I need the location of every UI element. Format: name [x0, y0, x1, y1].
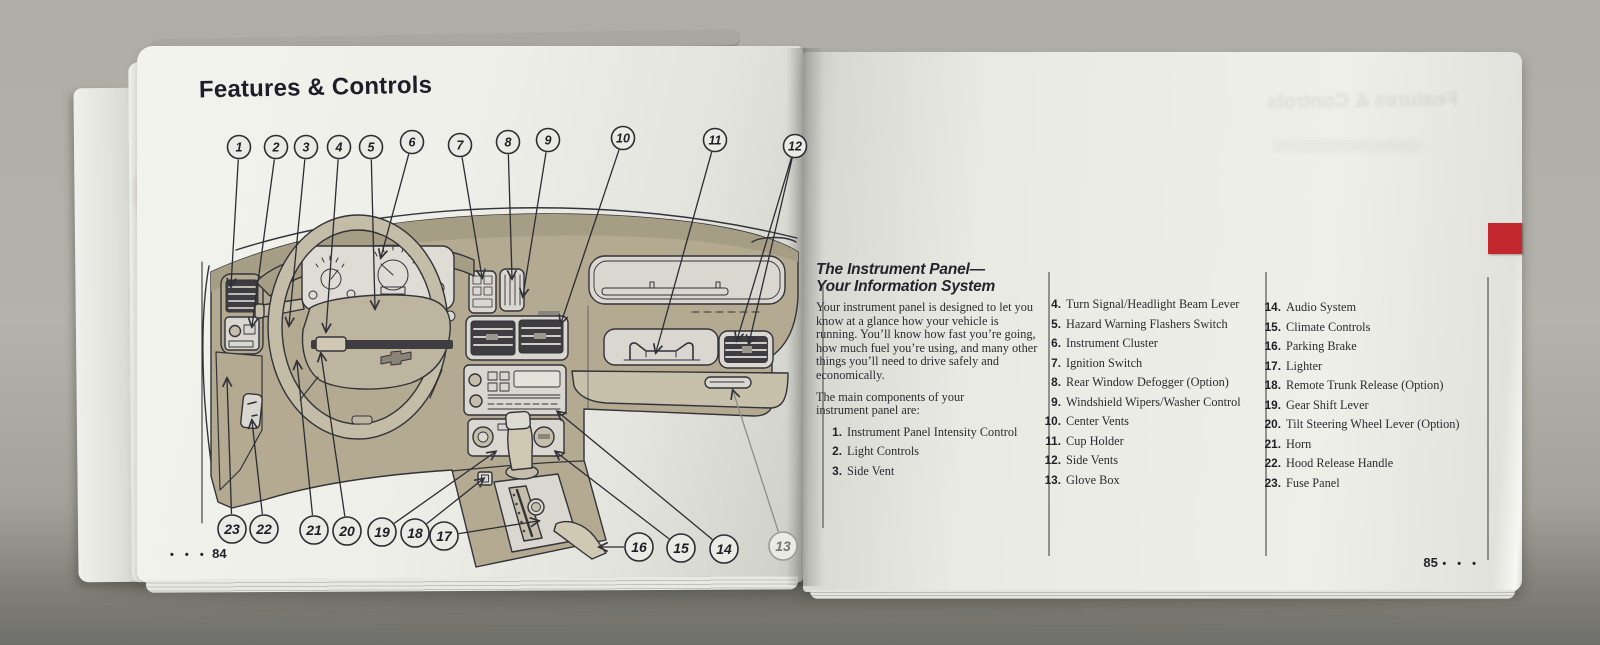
- list-item-label: Lighter: [1286, 359, 1322, 374]
- list-item-label: Remote Trunk Release (Option): [1286, 378, 1443, 393]
- list-item: 20. Tilt Steering Wheel Lever (Option): [1253, 417, 1515, 432]
- list-item: 7. Ignition Switch: [1035, 356, 1257, 371]
- page-dots: • • •: [1442, 558, 1480, 570]
- list-item-number: 14.: [1253, 300, 1281, 314]
- list-item: 19. Gear Shift Lever: [1253, 398, 1515, 413]
- right-page: Features & Controls The Instrument Panel…: [803, 52, 1522, 592]
- list-item: 8. Rear Window Defogger (Option): [1035, 375, 1257, 390]
- list-item-label: Side Vent: [847, 464, 894, 479]
- section-heading: Your Information System: [816, 279, 1040, 296]
- list-item: 13. Glove Box: [1035, 473, 1257, 488]
- list-item-number: 6.: [1035, 336, 1061, 350]
- list-item-label: Cup Holder: [1066, 434, 1124, 449]
- list-item-label: Light Controls: [847, 444, 919, 459]
- list-item: 21. Horn: [1253, 437, 1515, 452]
- list-item-label: Fuse Panel: [1286, 476, 1340, 491]
- left-page: Features & Controls • • • 84: [137, 46, 803, 582]
- list-item: 1. Instrument Panel Intensity Control: [816, 425, 1040, 440]
- list-item: 6. Instrument Cluster: [1035, 336, 1257, 351]
- list-item-label: Hazard Warning Flashers Switch: [1066, 317, 1228, 332]
- list-item-label: Turn Signal/Headlight Beam Lever: [1066, 297, 1239, 312]
- list-item-number: 7.: [1035, 356, 1061, 370]
- list-item: 3. Side Vent: [816, 464, 1040, 479]
- list-item-label: Hood Release Handle: [1286, 456, 1393, 471]
- list-item-number: 18.: [1253, 378, 1281, 392]
- list-item-number: 4.: [1035, 297, 1061, 311]
- list-item: 22. Hood Release Handle: [1253, 456, 1515, 471]
- right-page-bottom-edges: [810, 590, 1515, 599]
- intro-paragraph: Your instrument panel is designed to let…: [816, 301, 1040, 383]
- intro-column: The Instrument Panel— Your Information S…: [816, 262, 1040, 483]
- list-item: 17. Lighter: [1253, 359, 1515, 374]
- components-list-col2: 4. Turn Signal/Headlight Beam Lever 5. H…: [1035, 297, 1257, 492]
- list-item-number: 22.: [1253, 456, 1281, 470]
- list-item-label: Tilt Steering Wheel Lever (Option): [1286, 417, 1460, 432]
- page-title: Features & Controls: [199, 72, 433, 105]
- list-item-number: 10.: [1035, 414, 1061, 428]
- list-item-number: 19.: [1253, 398, 1281, 412]
- list-item-number: 8.: [1035, 375, 1061, 389]
- list-item: 18. Remote Trunk Release (Option): [1253, 378, 1515, 393]
- components-list-col1: 1. Instrument Panel Intensity Control 2.…: [816, 425, 1040, 479]
- list-item-label: Climate Controls: [1286, 320, 1370, 335]
- book-gutter-shadow: [786, 48, 824, 586]
- components-list-col3: 14. Audio System 15. Climate Controls 16…: [1253, 300, 1515, 495]
- list-item-label: Gear Shift Lever: [1286, 398, 1369, 413]
- bleedthrough-smudge: [1273, 140, 1423, 152]
- page-dots: • • •: [170, 549, 208, 561]
- list-item-number: 13.: [1035, 473, 1061, 487]
- right-page-number: 85 • • •: [1423, 554, 1480, 572]
- red-index-tab: [1488, 223, 1522, 254]
- list-item-number: 17.: [1253, 359, 1281, 373]
- list-item-label: Center Vents: [1066, 414, 1129, 429]
- list-item-number: 11.: [1035, 434, 1061, 448]
- section-heading: The Instrument Panel—: [816, 262, 1040, 279]
- list-item: 10. Center Vents: [1035, 414, 1257, 429]
- list-item: 16. Parking Brake: [1253, 339, 1515, 354]
- list-item-number: 23.: [1253, 476, 1281, 490]
- bleedthrough-ghost-text: Features & Controls: [1258, 88, 1458, 114]
- list-item: 14. Audio System: [1253, 300, 1515, 315]
- list-item: 9. Windshield Wipers/Washer Control: [1035, 395, 1257, 410]
- list-item: 12. Side Vents: [1035, 453, 1257, 468]
- left-page-number: • • • 84: [170, 545, 227, 563]
- list-item-label: Ignition Switch: [1066, 356, 1142, 371]
- list-item-label: Audio System: [1286, 300, 1356, 315]
- list-item-number: 9.: [1035, 395, 1061, 409]
- list-item: 15. Climate Controls: [1253, 320, 1515, 335]
- list-item-label: Instrument Cluster: [1066, 336, 1158, 351]
- list-item-label: Parking Brake: [1286, 339, 1357, 354]
- list-item-label: Side Vents: [1066, 453, 1118, 468]
- list-item-label: Rear Window Defogger (Option): [1066, 375, 1229, 390]
- list-item: 11. Cup Holder: [1035, 434, 1257, 449]
- list-item-label: Horn: [1286, 437, 1311, 452]
- components-lead-in: The main components of your instrument p…: [816, 391, 1001, 418]
- list-item-label: Glove Box: [1066, 473, 1120, 488]
- list-item-number: 20.: [1253, 417, 1281, 431]
- list-item-number: 12.: [1035, 453, 1061, 467]
- list-item-label: Windshield Wipers/Washer Control: [1066, 395, 1241, 410]
- list-item-number: 16.: [1253, 339, 1281, 353]
- list-item: 23. Fuse Panel: [1253, 476, 1515, 491]
- list-item-number: 21.: [1253, 437, 1281, 451]
- list-item-label: Instrument Panel Intensity Control: [847, 425, 1017, 440]
- list-item: 2. Light Controls: [816, 444, 1040, 459]
- list-item-number: 15.: [1253, 320, 1281, 334]
- list-item: 4. Turn Signal/Headlight Beam Lever: [1035, 297, 1257, 312]
- list-item-number: 5.: [1035, 317, 1061, 331]
- list-item: 5. Hazard Warning Flashers Switch: [1035, 317, 1257, 332]
